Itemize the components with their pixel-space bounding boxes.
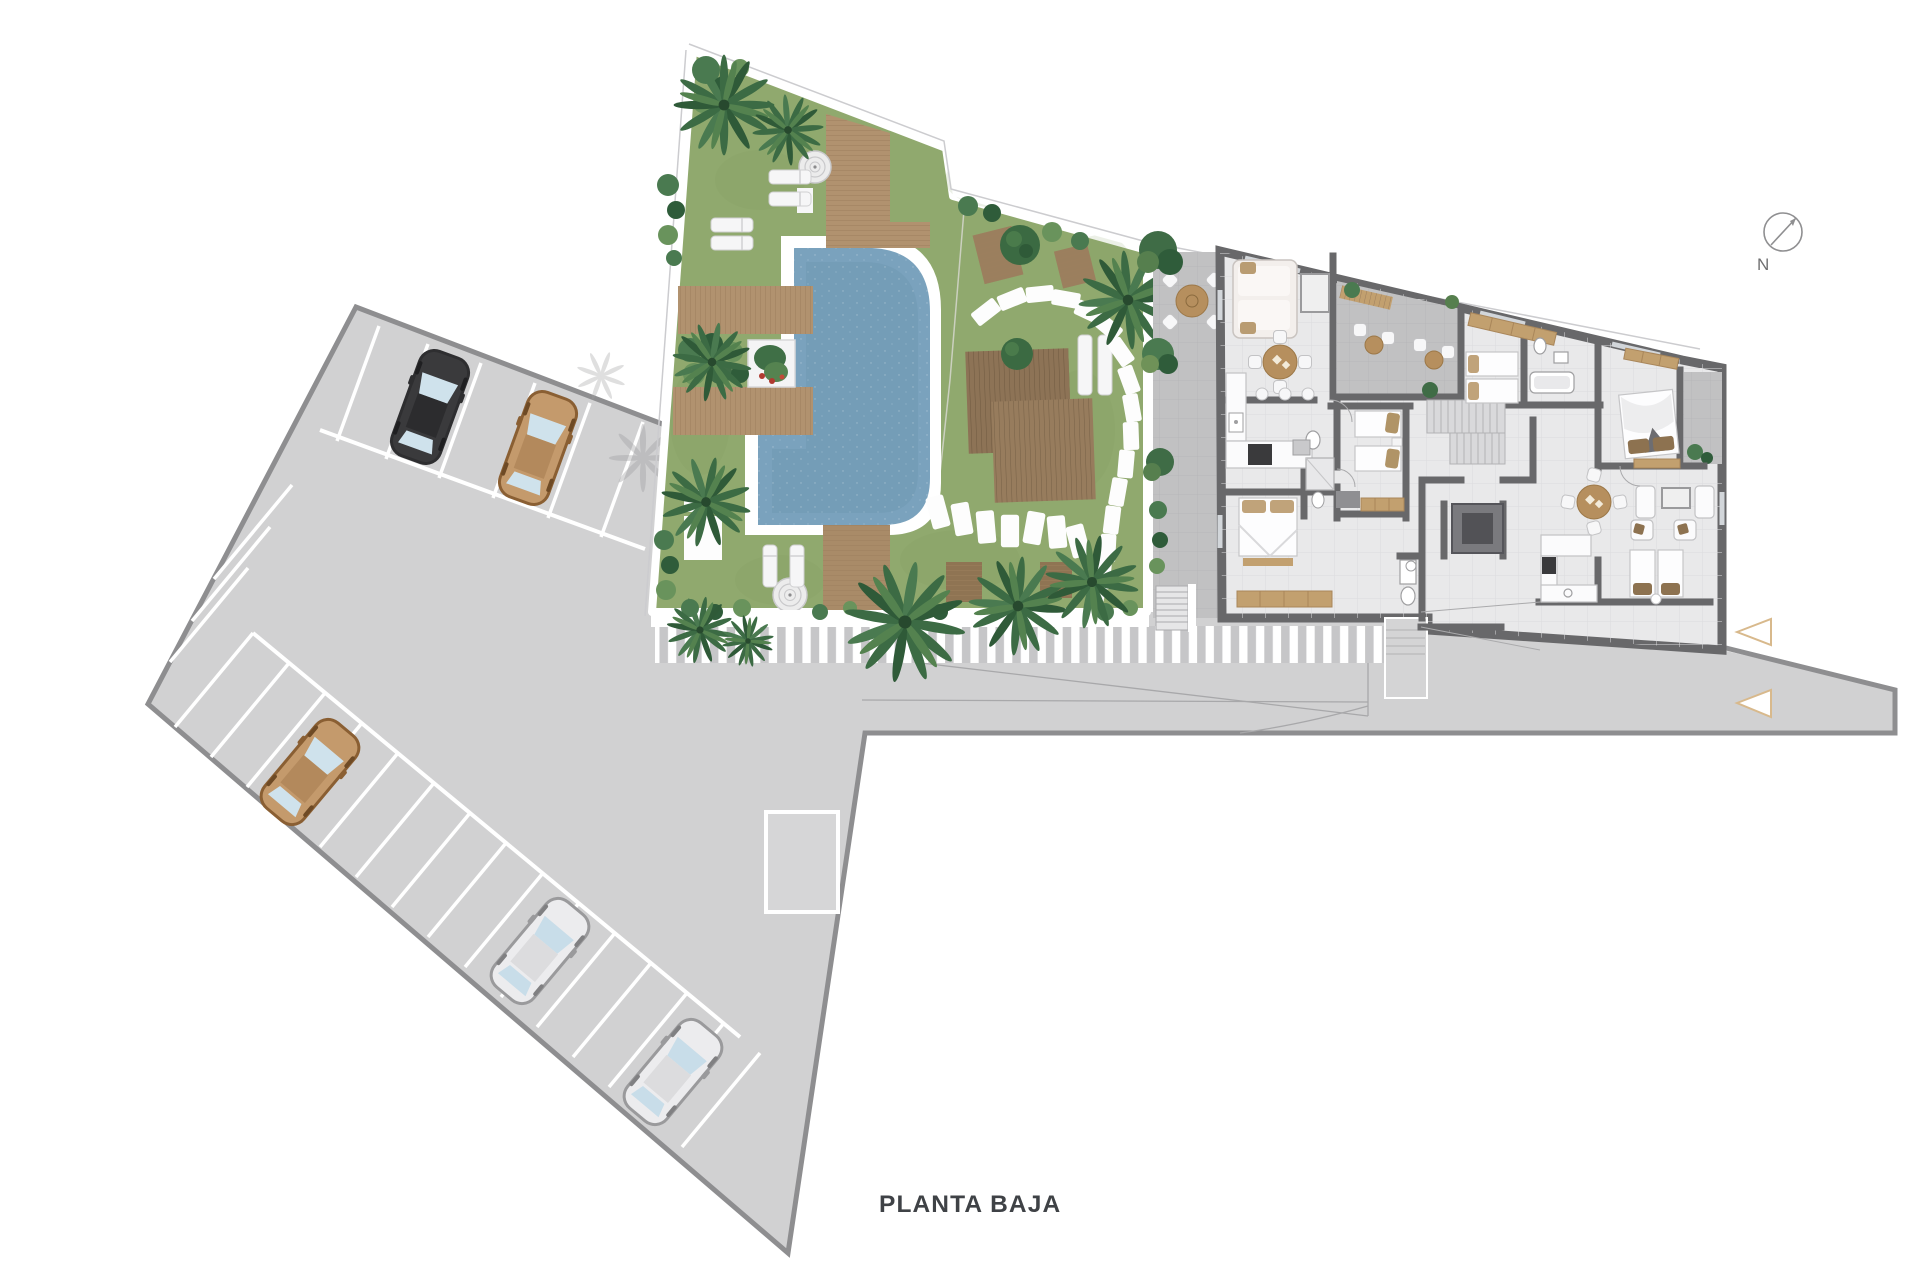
svg-text:PLANTA BAJA: PLANTA BAJA — [879, 1191, 1061, 1218]
svg-text:N: N — [1757, 255, 1769, 274]
